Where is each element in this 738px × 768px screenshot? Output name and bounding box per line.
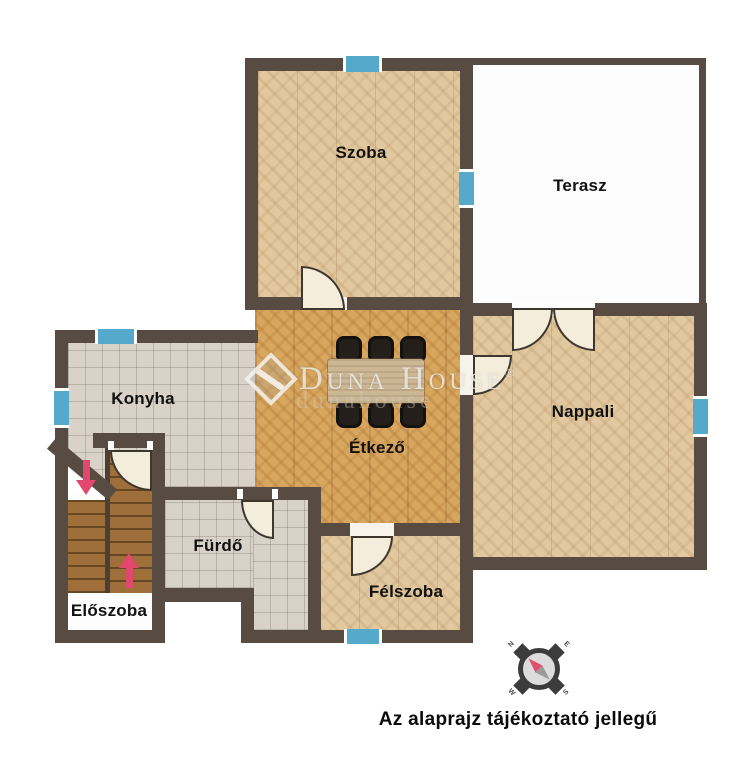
wall-eloszoba-bottom xyxy=(55,630,165,643)
wall-felszoba-left xyxy=(308,487,321,643)
compass-letter-e: E xyxy=(563,640,571,648)
stair-flight-left xyxy=(68,500,105,593)
window-nappali-right xyxy=(693,396,708,437)
dining-table xyxy=(328,359,424,403)
wall-eloszoba-right xyxy=(152,433,165,643)
compass-needle-south xyxy=(535,665,553,683)
jamb-stairs-right xyxy=(147,441,153,450)
floor-szoba xyxy=(258,71,460,297)
compass-letter-n: N xyxy=(507,640,516,649)
arrow-down-head xyxy=(76,480,96,495)
opening-felszoba-door xyxy=(350,523,394,536)
room-label-eloszoba: Előszoba xyxy=(71,601,147,621)
arrow-up-shaft xyxy=(126,568,133,588)
jamb-furdo-left xyxy=(237,489,243,499)
disclaimer-caption: Az alaprajz tájékoztató jellegű xyxy=(379,709,658,731)
wall-nappali-bottom xyxy=(460,557,707,570)
room-label-etkezo: Étkező xyxy=(349,438,405,458)
wall-terasz-right xyxy=(699,58,706,304)
room-label-nappali: Nappali xyxy=(552,402,615,422)
chair xyxy=(336,401,362,428)
arrow-up-head xyxy=(119,553,139,568)
room-label-konyha: Konyha xyxy=(111,389,175,409)
compass-rose-icon: N E W S xyxy=(513,643,565,695)
stair-divider xyxy=(105,448,110,593)
room-label-furdo: Fürdő xyxy=(193,536,242,556)
chair xyxy=(368,401,394,428)
opening-etkezo-nappali-door xyxy=(460,355,473,395)
room-label-terasz: Terasz xyxy=(553,176,607,196)
wall-terasz-top xyxy=(466,58,706,65)
window-konyha-top xyxy=(95,329,137,344)
room-label-felszoba: Félszoba xyxy=(369,582,443,602)
wall-furdo-bottom xyxy=(152,588,254,602)
arrow-down-shaft xyxy=(83,460,90,480)
jamb-stairs-left xyxy=(108,441,114,450)
jamb-furdo-right xyxy=(272,489,278,499)
wall-outer-left xyxy=(55,330,68,643)
floor-plan: Szoba Terasz Konyha Étkező Nappali Fürdő… xyxy=(0,0,738,768)
window-konyha-left xyxy=(54,388,69,428)
compass-letter-s: S xyxy=(563,688,571,696)
window-szoba-terasz xyxy=(459,169,474,208)
wall-szoba-left xyxy=(245,58,258,310)
arrow-up-icon xyxy=(119,553,139,588)
window-szoba-top xyxy=(343,56,382,72)
window-felszoba-bottom xyxy=(344,629,382,644)
wall-szoba-bottom xyxy=(245,297,473,310)
compass-letter-w: W xyxy=(506,688,516,698)
wall-etkezo-nappali xyxy=(460,303,473,643)
arrow-down-icon xyxy=(76,460,96,495)
chair xyxy=(400,401,426,428)
floor-nappali xyxy=(473,316,694,557)
wall-konyha-top xyxy=(55,330,258,343)
room-label-szoba: Szoba xyxy=(335,143,386,163)
wall-furdo-top xyxy=(152,487,317,500)
